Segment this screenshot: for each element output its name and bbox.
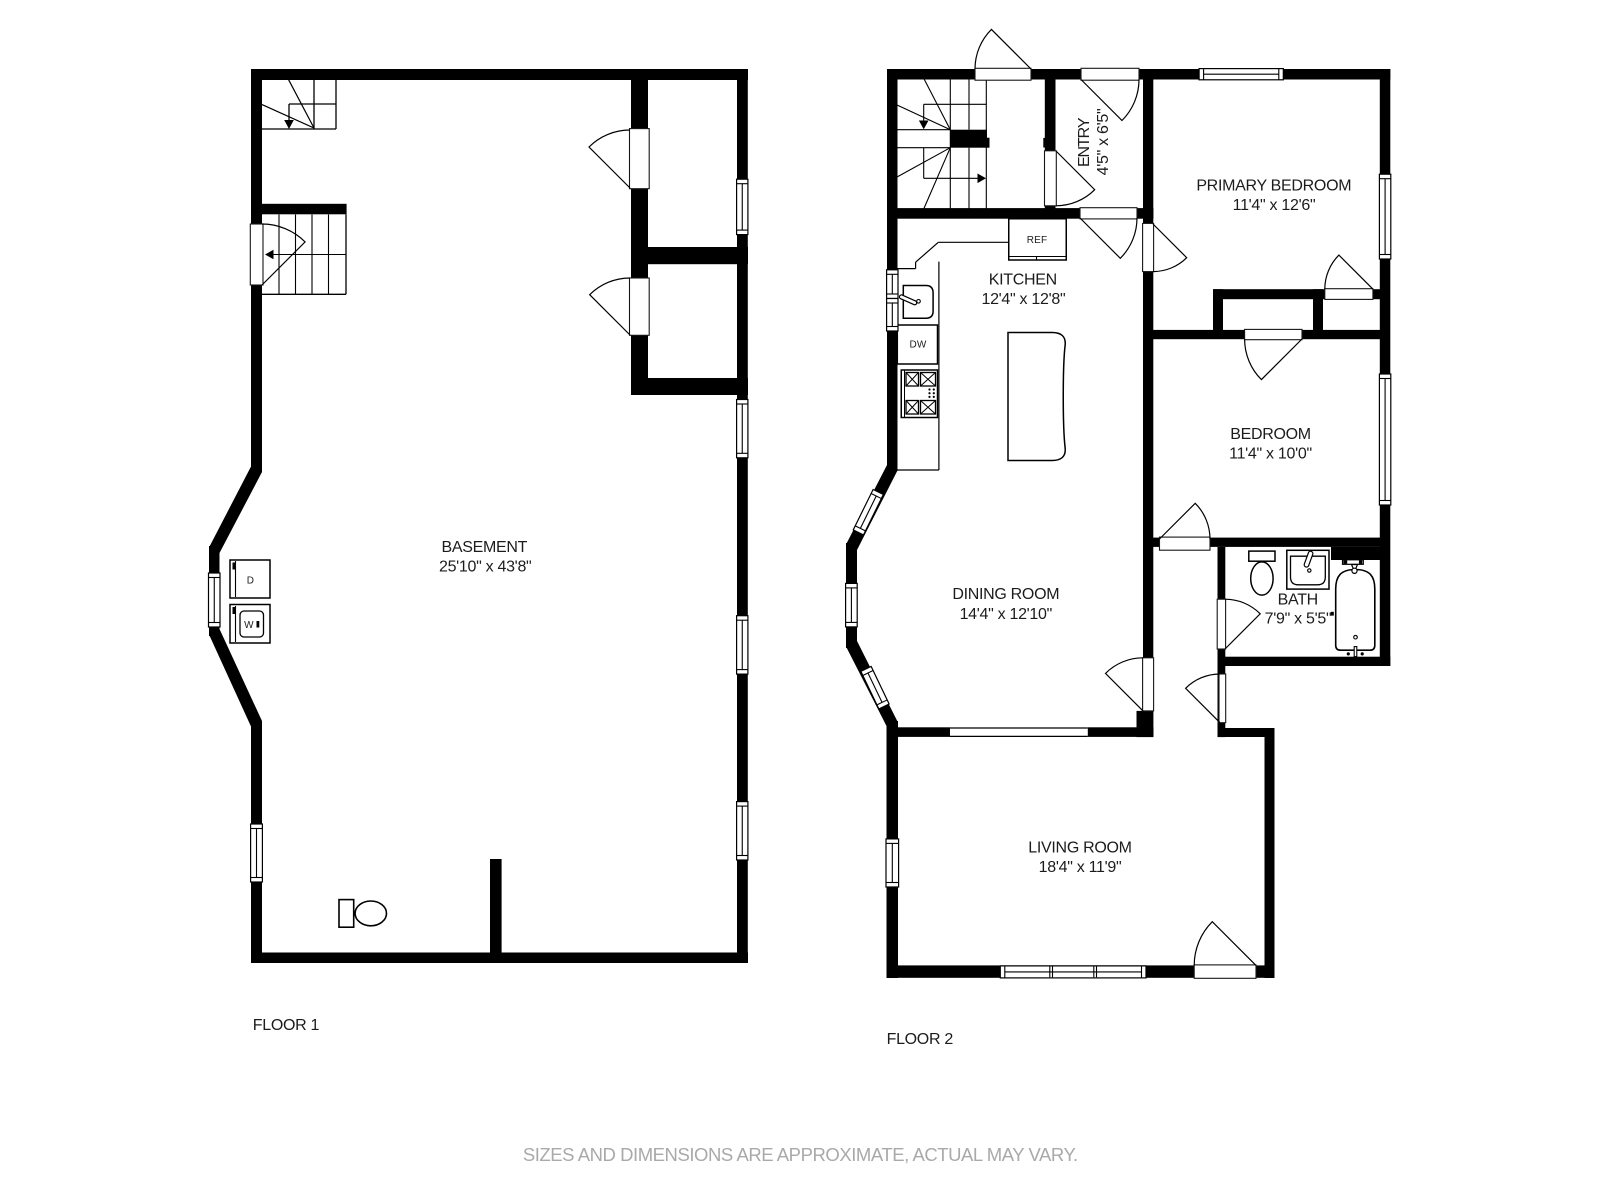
- svg-text:4'5" x 6'5": 4'5" x 6'5": [1095, 109, 1112, 176]
- svg-text:FLOOR 1: FLOOR 1: [253, 1017, 320, 1034]
- svg-text:7'9" x 5'5": 7'9" x 5'5": [1265, 611, 1332, 628]
- svg-text:BASEMENT: BASEMENT: [441, 539, 527, 556]
- svg-text:PRIMARY BEDROOM: PRIMARY BEDROOM: [1196, 178, 1351, 195]
- svg-text:12'4" x 12'8": 12'4" x 12'8": [981, 291, 1065, 308]
- svg-text:FLOOR 2: FLOOR 2: [887, 1031, 954, 1048]
- svg-text:BATH: BATH: [1278, 591, 1318, 608]
- svg-text:14'4" x 12'10": 14'4" x 12'10": [960, 606, 1052, 623]
- svg-text:W: W: [244, 620, 254, 631]
- svg-text:11'4" x 10'0": 11'4" x 10'0": [1229, 446, 1312, 463]
- svg-text:25'10" x 43'8": 25'10" x 43'8": [439, 558, 531, 575]
- svg-text:D: D: [247, 576, 254, 587]
- svg-text:ENTRY: ENTRY: [1076, 117, 1093, 167]
- svg-text:18'4" x 11'9": 18'4" x 11'9": [1039, 859, 1122, 876]
- svg-text:DINING ROOM: DINING ROOM: [952, 586, 1059, 603]
- svg-text:SIZES AND DIMENSIONS ARE APPRO: SIZES AND DIMENSIONS ARE APPROXIMATE, AC…: [523, 1144, 1078, 1165]
- svg-text:11'4" x 12'6": 11'4" x 12'6": [1233, 197, 1316, 214]
- svg-text:LIVING ROOM: LIVING ROOM: [1028, 840, 1131, 857]
- svg-text:DW: DW: [909, 340, 926, 351]
- svg-text:REF: REF: [1027, 235, 1048, 246]
- svg-text:KITCHEN: KITCHEN: [989, 272, 1057, 289]
- svg-text:BEDROOM: BEDROOM: [1230, 426, 1311, 443]
